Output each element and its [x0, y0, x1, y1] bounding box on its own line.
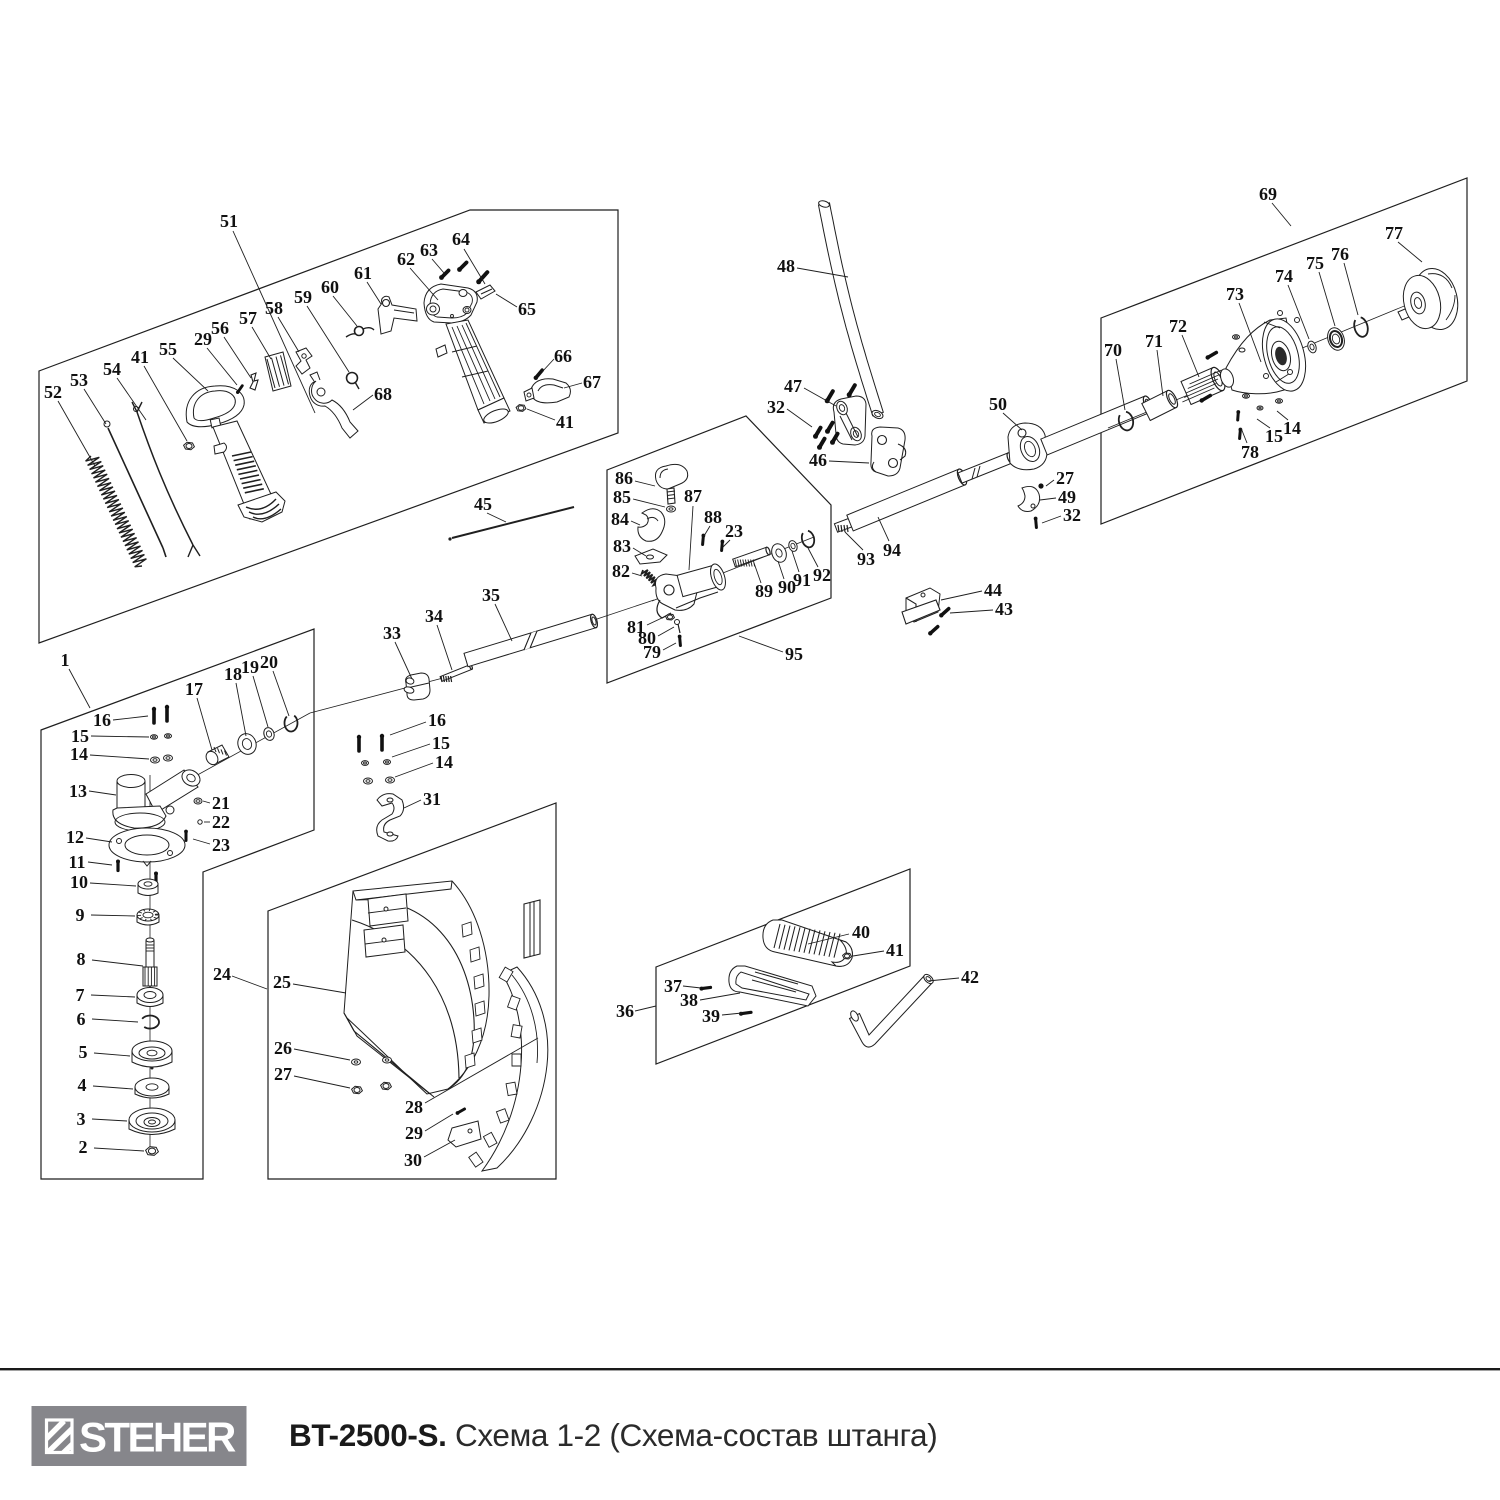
svg-text:27: 27: [1056, 468, 1074, 488]
svg-text:30: 30: [404, 1150, 422, 1170]
svg-text:48: 48: [777, 256, 795, 276]
svg-text:21: 21: [212, 793, 230, 813]
svg-text:41: 41: [886, 940, 904, 960]
svg-text:55: 55: [159, 339, 177, 359]
svg-text:88: 88: [704, 507, 722, 527]
svg-text:86: 86: [615, 468, 633, 488]
svg-text:84: 84: [611, 509, 629, 529]
svg-text:79: 79: [643, 642, 661, 662]
svg-text:1: 1: [61, 650, 70, 670]
svg-text:26: 26: [274, 1038, 292, 1058]
svg-text:22: 22: [212, 812, 230, 832]
svg-text:62: 62: [397, 249, 415, 269]
svg-text:8: 8: [77, 949, 86, 969]
svg-text:18: 18: [224, 664, 242, 684]
svg-text:59: 59: [294, 287, 312, 307]
svg-text:38: 38: [680, 990, 698, 1010]
svg-text:54: 54: [103, 359, 121, 379]
svg-text:23: 23: [212, 835, 230, 855]
svg-text:63: 63: [420, 240, 438, 260]
svg-text:42: 42: [961, 967, 979, 987]
svg-text:12: 12: [66, 827, 84, 847]
svg-text:16: 16: [428, 710, 446, 730]
svg-text:76: 76: [1331, 244, 1349, 264]
svg-text:66: 66: [554, 346, 572, 366]
svg-text:61: 61: [354, 263, 372, 283]
svg-text:36: 36: [616, 1001, 634, 1021]
svg-text:15: 15: [1265, 426, 1283, 446]
svg-text:27: 27: [274, 1064, 292, 1084]
svg-text:56: 56: [211, 318, 229, 338]
svg-text:87: 87: [684, 486, 702, 506]
svg-text:78: 78: [1241, 442, 1259, 462]
svg-text:83: 83: [613, 536, 631, 556]
svg-text:93: 93: [857, 549, 875, 569]
svg-text:89: 89: [755, 581, 773, 601]
svg-text:50: 50: [989, 394, 1007, 414]
svg-text:41: 41: [131, 347, 149, 367]
svg-text:2: 2: [79, 1137, 88, 1157]
svg-text:23: 23: [725, 521, 743, 541]
svg-text:70: 70: [1104, 340, 1122, 360]
svg-text:46: 46: [809, 450, 827, 470]
svg-text:57: 57: [239, 308, 257, 328]
svg-text:6: 6: [77, 1009, 86, 1029]
svg-text:82: 82: [612, 561, 630, 581]
svg-text:68: 68: [374, 384, 392, 404]
svg-text:16: 16: [93, 710, 111, 730]
svg-text:4: 4: [78, 1075, 87, 1095]
svg-text:14: 14: [435, 752, 453, 772]
svg-text:33: 33: [383, 623, 401, 643]
svg-text:71: 71: [1145, 331, 1163, 351]
svg-text:5: 5: [79, 1042, 88, 1062]
svg-text:29: 29: [194, 329, 212, 349]
svg-text:STEHER: STEHER: [79, 1414, 236, 1461]
svg-text:14: 14: [1283, 418, 1301, 438]
svg-text:39: 39: [702, 1006, 720, 1026]
svg-text:65: 65: [518, 299, 536, 319]
svg-text:10: 10: [70, 872, 88, 892]
svg-text:13: 13: [69, 781, 87, 801]
svg-text:94: 94: [883, 540, 901, 560]
svg-text:52: 52: [44, 382, 62, 402]
svg-text:77: 77: [1385, 223, 1403, 243]
svg-text:11: 11: [68, 852, 85, 872]
svg-text:9: 9: [76, 905, 85, 925]
svg-text:25: 25: [273, 972, 291, 992]
svg-text:91: 91: [793, 570, 811, 590]
svg-text:45: 45: [474, 494, 492, 514]
svg-text:24: 24: [213, 964, 231, 984]
svg-text:40: 40: [852, 922, 870, 942]
svg-text:74: 74: [1275, 266, 1293, 286]
svg-text:28: 28: [405, 1097, 423, 1117]
svg-text:44: 44: [984, 580, 1002, 600]
svg-text:64: 64: [452, 229, 470, 249]
svg-text:3: 3: [77, 1109, 86, 1129]
svg-text:92: 92: [813, 565, 831, 585]
svg-text:19: 19: [241, 657, 259, 677]
svg-text:34: 34: [425, 606, 443, 626]
svg-text:41: 41: [556, 412, 574, 432]
svg-text:32: 32: [1063, 505, 1081, 525]
svg-text:15: 15: [71, 726, 89, 746]
svg-text:17: 17: [185, 679, 203, 699]
svg-text:73: 73: [1226, 284, 1244, 304]
svg-text:51: 51: [220, 211, 238, 231]
svg-text:32: 32: [767, 397, 785, 417]
svg-text:7: 7: [76, 985, 85, 1005]
svg-text:47: 47: [784, 376, 802, 396]
svg-text:95: 95: [785, 644, 803, 664]
svg-text:35: 35: [482, 585, 500, 605]
svg-text:60: 60: [321, 277, 339, 297]
svg-text:29: 29: [405, 1123, 423, 1143]
svg-text:15: 15: [432, 733, 450, 753]
svg-text:49: 49: [1058, 487, 1076, 507]
svg-text:14: 14: [70, 744, 88, 764]
svg-text:75: 75: [1306, 253, 1324, 273]
svg-text:31: 31: [423, 789, 441, 809]
svg-text:72: 72: [1169, 316, 1187, 336]
svg-text:67: 67: [583, 372, 601, 392]
svg-text:53: 53: [70, 370, 88, 390]
svg-text:BT-2500-S. Схема 1-2 (Схема-со: BT-2500-S. Схема 1-2 (Схема-состав штанг…: [289, 1417, 937, 1453]
svg-text:20: 20: [260, 652, 278, 672]
svg-text:85: 85: [613, 487, 631, 507]
svg-text:69: 69: [1259, 184, 1277, 204]
svg-text:43: 43: [995, 599, 1013, 619]
